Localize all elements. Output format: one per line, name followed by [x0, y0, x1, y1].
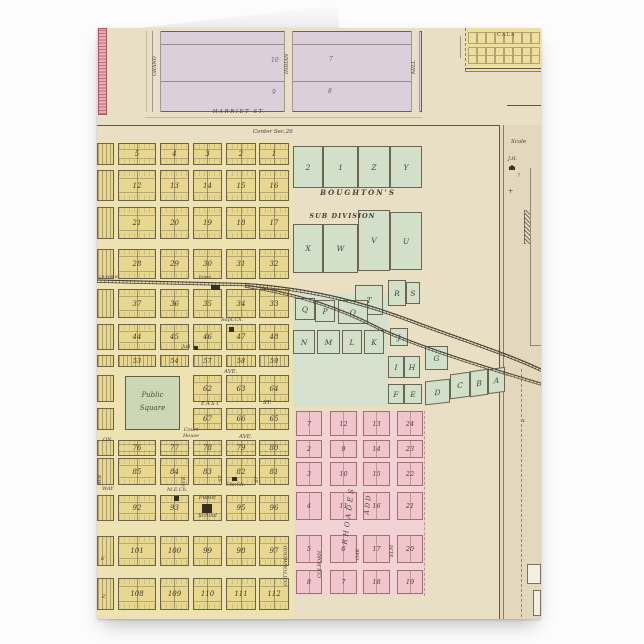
addition-block: 9 — [330, 440, 357, 458]
inset-block-outline — [533, 590, 541, 616]
subdivision-block: Q — [295, 298, 315, 320]
inset-lot — [522, 47, 531, 64]
edge-block — [97, 143, 114, 165]
town-block: 101 — [118, 536, 156, 566]
town-block: 92 — [118, 495, 156, 521]
subdivision-block: L — [342, 330, 362, 354]
jail-label: Jail — [182, 345, 190, 350]
street-line — [146, 31, 147, 112]
survey-x-mark: x — [522, 419, 525, 424]
baptist-church-label: Bapt.Ch. — [221, 318, 243, 323]
inset-lot — [531, 47, 540, 64]
east-street-label: EAST — [201, 402, 220, 408]
edge-block — [97, 578, 114, 610]
town-block: 109 — [160, 578, 189, 610]
public-square-label: Public — [125, 392, 180, 399]
town-block: 76 — [118, 440, 156, 456]
survey-cross-mark: + — [508, 188, 513, 195]
town-block: 77 — [160, 440, 189, 456]
addition-block: 7 — [330, 570, 357, 594]
greeting-card-product-scene: 10 7 9 8 GRAND INDIAN MILL HARRIET ST. C… — [0, 0, 644, 644]
subdivision-block: S — [406, 282, 420, 304]
town-block: 18 — [226, 207, 256, 239]
block-number: 10 — [271, 58, 279, 64]
town-block: 54 — [160, 355, 189, 367]
subdivision-block: E — [404, 384, 422, 404]
town-block: 48 — [259, 324, 289, 350]
dashed-boundary-line — [521, 369, 522, 617]
public-school-label: School — [193, 514, 222, 520]
subdivision-block: Z — [358, 146, 390, 188]
edge-block — [97, 536, 114, 566]
town-block: 5 — [118, 143, 156, 165]
margin-number: 7 — [517, 174, 520, 179]
me-church-label: M.E.Ch. — [167, 488, 188, 493]
town-block: 108 — [118, 578, 156, 610]
subdivision-block: A — [488, 367, 505, 394]
addition-block: 7 — [296, 411, 322, 436]
subdivision-block: Y — [390, 146, 422, 188]
subdivision-block: G — [425, 346, 448, 370]
town-block: 110 — [193, 578, 222, 610]
lot-line — [161, 44, 284, 45]
town-block: 63 — [226, 375, 256, 402]
town-block: 20 — [160, 207, 189, 239]
subdivision-block: X — [293, 224, 323, 273]
inset-title: CALA — [497, 33, 515, 38]
subdivision-block: I — [388, 356, 404, 378]
subdivision-block: O — [338, 300, 368, 324]
street-line — [145, 117, 422, 118]
inset-lot — [504, 47, 513, 64]
inset-lot — [486, 32, 495, 44]
subdivision-block: K — [364, 330, 384, 354]
subdivision-block: M — [317, 330, 340, 354]
margin-frame-line — [507, 105, 541, 106]
scale-label: Scale — [511, 140, 526, 146]
christian-church-building — [232, 477, 237, 481]
town-block: 98 — [226, 536, 256, 566]
edge-block — [97, 495, 114, 521]
town-block: 78 — [193, 440, 222, 456]
town-block: 15 — [226, 170, 256, 201]
town-block: 111 — [226, 578, 256, 610]
card-front-panel: 10 7 9 8 GRAND INDIAN MILL HARRIET ST. C… — [97, 28, 541, 619]
town-block: 28 — [118, 249, 156, 279]
subdivision-block: H — [404, 356, 420, 378]
elm-street-label: ELM — [390, 537, 395, 557]
indian-street-label: INDIAN — [285, 32, 290, 74]
town-block: 53 — [118, 355, 156, 367]
street-label: ON — [103, 438, 111, 443]
town-block: 21 — [118, 207, 156, 239]
town-block: 33 — [259, 289, 289, 318]
addition-block: 22 — [397, 462, 423, 486]
addition-block: 23 — [397, 440, 423, 458]
me-church-building — [174, 496, 179, 501]
inset-border — [465, 71, 541, 72]
inset-lot — [531, 32, 540, 44]
inset-lot — [468, 32, 477, 44]
public-square-block — [125, 376, 180, 430]
lot-line — [293, 44, 411, 45]
jail-building — [194, 346, 198, 350]
hatched-boundary-mark — [524, 210, 530, 244]
inset-lot — [513, 47, 522, 64]
edge-block — [97, 355, 114, 367]
town-block: 62 — [193, 375, 222, 402]
subdivision-block: W — [323, 224, 358, 273]
street-label: ST — [219, 468, 224, 482]
public-school-label: Public — [193, 496, 222, 502]
oak-street-label: OAK — [356, 540, 361, 560]
addition-block: 2 — [296, 440, 322, 458]
inset-lot — [477, 32, 486, 44]
town-block: 65 — [259, 408, 289, 430]
court-house-label: House — [181, 434, 201, 439]
street-label: ST — [255, 469, 260, 483]
street-label: ST. — [263, 401, 271, 407]
town-block: 2 — [226, 143, 256, 165]
town-block: 1 — [259, 143, 289, 165]
depot-label: Depot — [199, 275, 211, 279]
margin-frame-line — [530, 345, 541, 346]
margin-frame-line — [530, 168, 531, 346]
subdivision-block: D — [425, 379, 450, 406]
inset-lot — [477, 47, 486, 64]
town-block: 12 — [118, 170, 156, 201]
town-block: 32 — [259, 249, 289, 279]
colborn-street-label: COLBORN — [318, 534, 323, 578]
town-block: 80 — [259, 440, 289, 456]
subdivision-block: N — [293, 330, 315, 354]
depot-building — [211, 285, 220, 290]
addition-block: 4 — [296, 492, 322, 520]
town-block: 57 — [193, 355, 222, 367]
subdivision-block: 2 — [293, 146, 323, 188]
owner-initials-label: J.H. — [508, 157, 517, 162]
christian-church-label: Chr.Ch. — [226, 483, 245, 488]
baptist-church-building — [229, 327, 234, 332]
addition-block: 21 — [397, 492, 423, 520]
avenue-label: AVE. — [224, 370, 237, 376]
inset-lot — [522, 32, 531, 44]
addition-block: 3 — [296, 462, 322, 486]
subdivision-block: U — [390, 212, 422, 270]
subdivision-block: P — [315, 300, 335, 322]
town-block: 4 — [160, 143, 189, 165]
addition-block: 19 — [397, 570, 423, 594]
subdivision-block: J — [390, 328, 408, 346]
addition-block: 18 — [363, 570, 390, 594]
inset-lot — [486, 47, 495, 64]
subdivision-block: 1 — [323, 146, 358, 188]
cottonwood-street-label: COTTONWOOD — [284, 524, 289, 586]
town-block: 31 — [226, 249, 256, 279]
town-block: 96 — [259, 495, 289, 521]
avenue-label: AVE. — [182, 459, 187, 487]
railroad-label: J.B.W.R.R. — [99, 275, 119, 279]
way-street-label: WAY — [102, 487, 114, 492]
town-block: 13 — [160, 170, 189, 201]
town-block: 95 — [226, 495, 256, 521]
addition-block: 20 — [397, 535, 423, 563]
town-block: 58 — [226, 355, 256, 367]
town-block: 17 — [259, 207, 289, 239]
block-number: 7 — [329, 57, 333, 63]
addition-block: 17 — [363, 535, 390, 563]
subdivision-block: R — [388, 280, 406, 306]
town-block: 85 — [118, 458, 156, 485]
inset-lot — [468, 47, 477, 64]
town-block: 81 — [259, 458, 289, 485]
addition-block: 12 — [330, 411, 357, 436]
public-school-building — [202, 504, 212, 513]
lot-line — [161, 81, 284, 82]
harriet-street-label: HARRIET ST. — [197, 110, 282, 116]
block-number: 8 — [328, 89, 332, 95]
edge-block — [97, 289, 114, 318]
grand-street-label: GRAND — [153, 34, 158, 76]
addition-block: 14 — [363, 440, 390, 458]
town-block: 19 — [193, 207, 222, 239]
town-block: 44 — [118, 324, 156, 350]
west-lots-strip — [98, 28, 107, 115]
town-block: 82 — [226, 458, 256, 485]
avenue-label: AVE. — [239, 435, 252, 441]
inset-side-mark — [460, 36, 461, 58]
town-block: 99 — [193, 536, 222, 566]
edge-block — [97, 324, 114, 350]
town-plat-map: 10 7 9 8 GRAND INDIAN MILL HARRIET ST. C… — [97, 28, 541, 619]
addition-block: 24 — [397, 411, 423, 436]
town-block: 16 — [259, 170, 289, 201]
town-block: 59 — [259, 355, 289, 367]
block-number: 9 — [272, 90, 276, 96]
town-block: 66 — [226, 408, 256, 430]
subdivision-block: C — [450, 372, 470, 400]
street-label: E — [101, 557, 105, 562]
addition-block: 13 — [363, 411, 390, 436]
subdivision-title: BOUGHTON'S — [293, 189, 423, 196]
town-block: 79 — [226, 440, 256, 456]
subdivision-block: F — [388, 384, 404, 404]
street-label: Z — [102, 595, 105, 600]
mill-street-label: MILL — [412, 32, 417, 74]
inset-block-outline — [527, 564, 541, 584]
inset-lot — [495, 47, 504, 64]
edge-block — [97, 408, 114, 430]
avenue-label: AVE — [98, 461, 103, 485]
town-block: 3 — [193, 143, 222, 165]
town-block: 14 — [193, 170, 222, 201]
town-block: 29 — [160, 249, 189, 279]
subdivision-subtitle: SUB DIVISION — [295, 213, 390, 220]
edge-block — [97, 170, 114, 201]
town-block: 36 — [160, 289, 189, 318]
subdivision-block: B — [470, 369, 488, 398]
town-block: 35 — [193, 289, 222, 318]
edge-block — [97, 207, 114, 239]
plat-boundary-line — [97, 125, 500, 126]
town-block: 37 — [118, 289, 156, 318]
inset-border — [465, 68, 541, 69]
section-center-label: Center Sec.26 — [253, 130, 293, 136]
town-block: 100 — [160, 536, 189, 566]
public-square-label: Square — [125, 405, 180, 412]
town-block: 34 — [226, 289, 256, 318]
lot-line — [293, 81, 411, 82]
town-block: 64 — [259, 375, 289, 402]
edge-block — [97, 375, 114, 402]
